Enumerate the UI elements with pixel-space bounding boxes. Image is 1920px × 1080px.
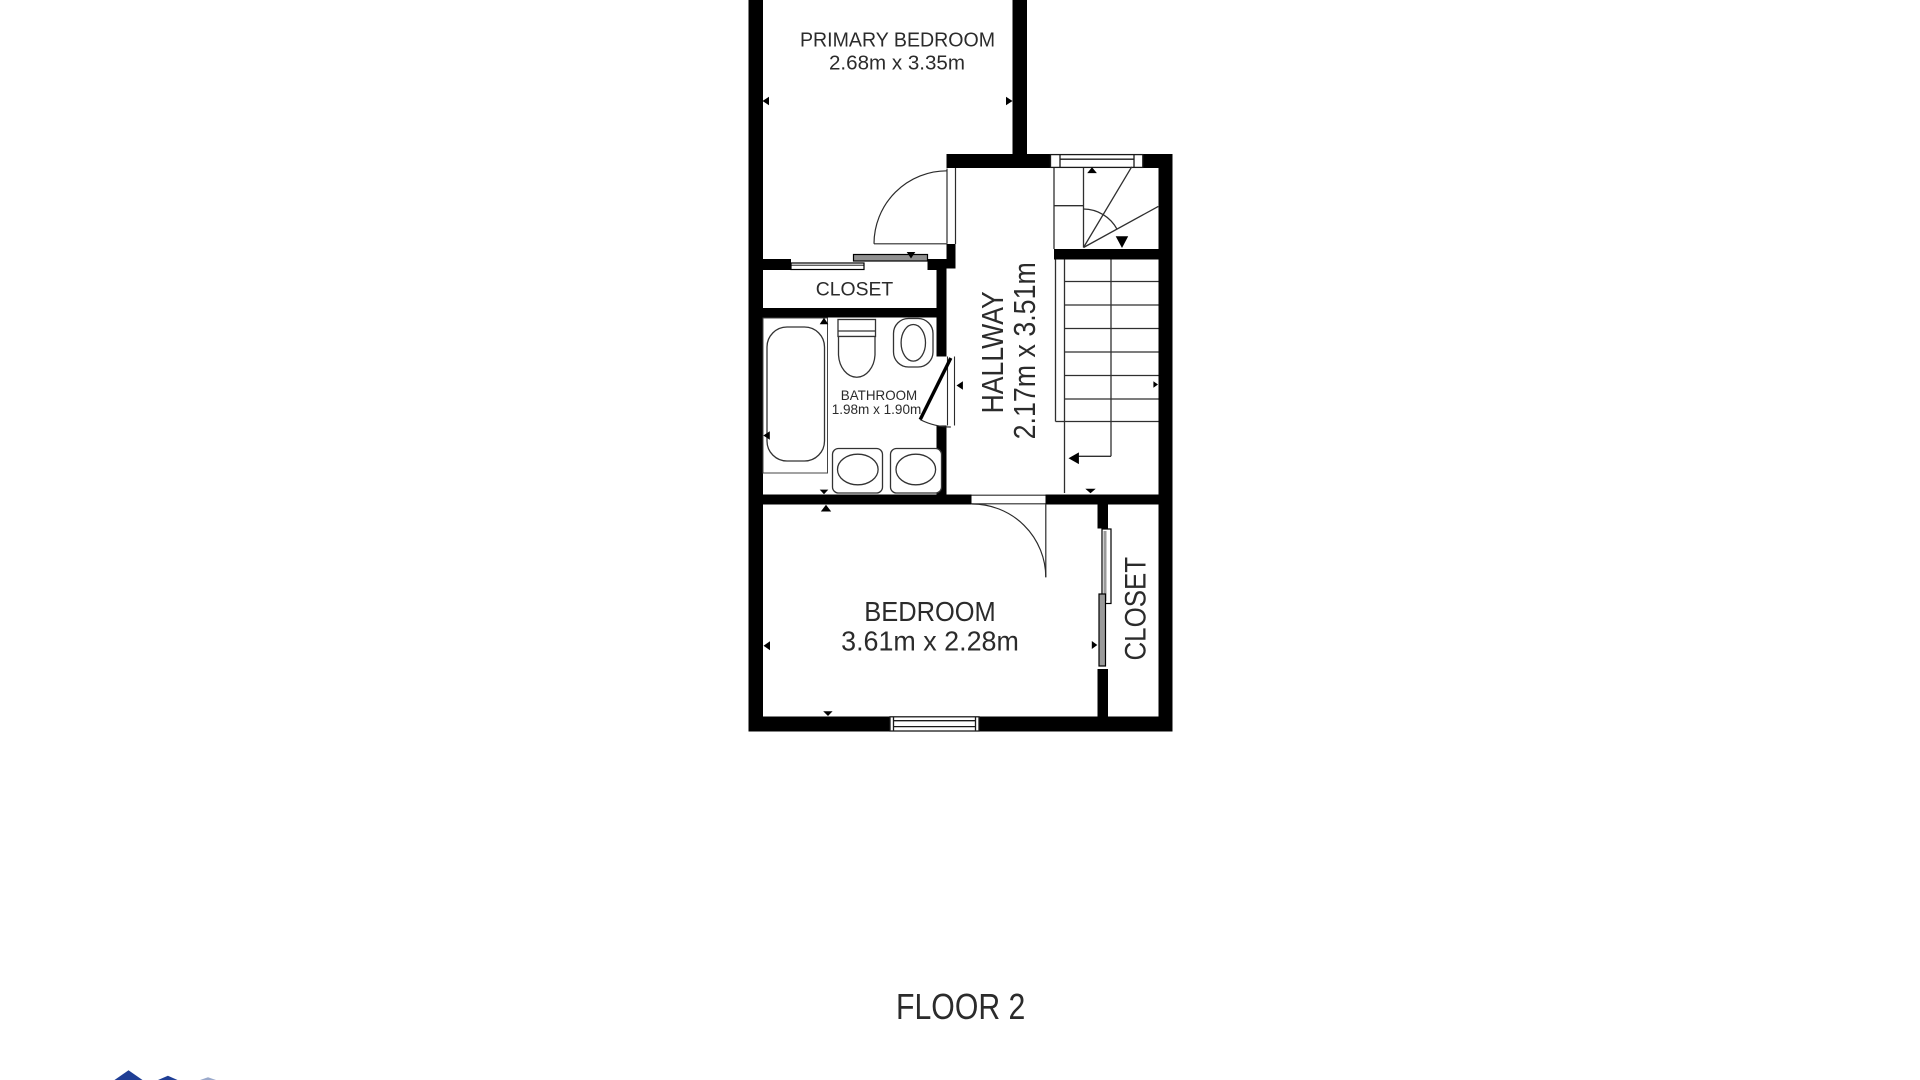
svg-text:1.98m x 1.90m: 1.98m x 1.90m — [832, 401, 922, 417]
svg-text:PRIMARY BEDROOM: PRIMARY BEDROOM — [800, 30, 995, 52]
svg-text:HALLWAY: HALLWAY — [976, 291, 1010, 413]
svg-text:2.17m x 3.51m: 2.17m x 3.51m — [1008, 262, 1042, 439]
svg-text:3.61m x 2.28m: 3.61m x 2.28m — [841, 626, 1019, 657]
svg-text:CLOSET: CLOSET — [816, 278, 894, 300]
svg-text:BEDROOM: BEDROOM — [864, 596, 996, 627]
svg-text:CLOSET: CLOSET — [1120, 557, 1153, 661]
svg-text:2.68m x 3.35m: 2.68m x 3.35m — [829, 52, 965, 74]
svg-text:FLOOR 2: FLOOR 2 — [896, 986, 1025, 1027]
